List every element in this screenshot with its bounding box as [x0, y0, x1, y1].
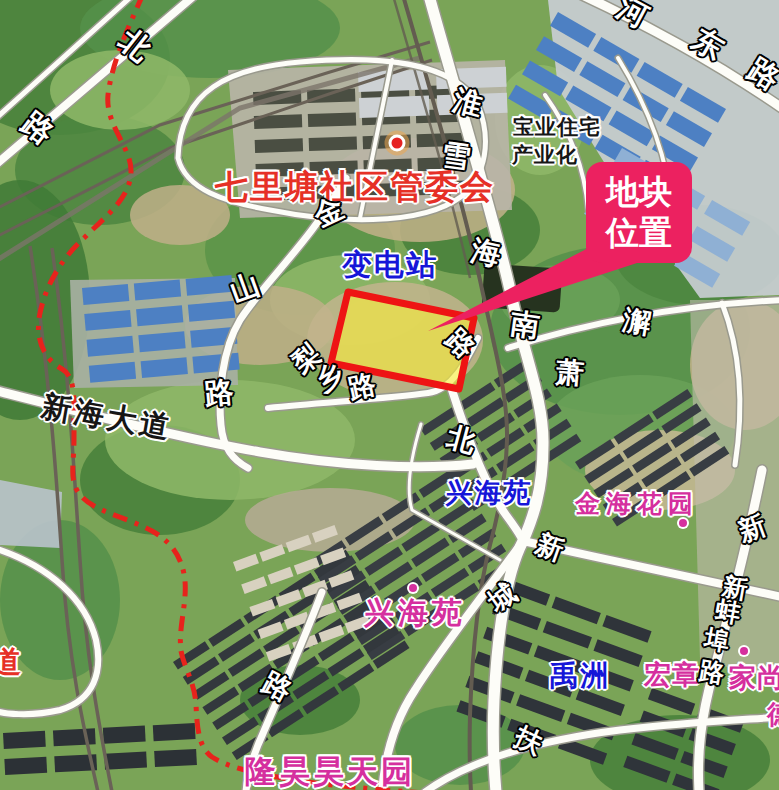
parcel-location-callout: 地块 位置	[586, 162, 692, 263]
substation-label: 变电站	[342, 250, 438, 280]
road-name-char: 路	[442, 324, 480, 362]
road-name-char: 东	[688, 24, 729, 65]
committee-marker	[392, 138, 403, 149]
road-name-char: 萧	[555, 358, 585, 388]
road-name-char: 北	[114, 24, 156, 66]
road-name-char: 城	[483, 578, 521, 616]
road-name-char: 海	[469, 236, 503, 270]
road-name-char: 新	[533, 530, 568, 565]
callout-line1: 地块	[606, 173, 672, 211]
road-name-char: 路	[203, 377, 234, 408]
road-name-char: 蚌	[714, 598, 743, 627]
road-name-char: 路	[17, 107, 59, 149]
satellite-map[interactable]: 七里塘社区管委会街道变电站兴海苑禹洲宝业住宅产业化新海大道金海花园兴海苑隆昊昊天…	[0, 0, 779, 790]
hongzhang-label: 宏章	[644, 661, 700, 688]
partial-label-right-edge: 德	[767, 701, 779, 727]
jinhai-garden-label: 金海花园	[575, 491, 699, 516]
road-name-char: 新	[735, 511, 770, 546]
jinhai-marker	[679, 519, 687, 527]
road-name-char: 路	[698, 658, 727, 687]
xinghaiyuan-marker	[409, 584, 417, 592]
road-name-char: 埠	[703, 626, 732, 655]
map-labels: 七里塘社区管委会街道变电站兴海苑禹洲宝业住宅产业化新海大道金海花园兴海苑隆昊昊天…	[0, 0, 779, 790]
road-name-char: 路	[258, 668, 296, 706]
hongzhang-marker	[740, 647, 748, 655]
jiashang-label: 家尚	[729, 664, 779, 691]
road-name-char: 南	[509, 309, 542, 342]
road-name-char: 路	[743, 53, 779, 94]
road-name-char: 扶	[511, 722, 547, 758]
road-name-char: 淮	[450, 85, 486, 121]
xinghaiyuan-north-label: 兴海苑	[446, 479, 533, 506]
qilitang-committee-label: 七里塘社区管委会	[215, 170, 495, 203]
road-name-char: 北	[444, 423, 478, 457]
longhao-haotianyuan-label: 隆昊昊天园	[245, 756, 415, 787]
road-name-char: 河	[613, 0, 654, 32]
xinghaiyuan-south-label: 兴海苑	[364, 598, 466, 628]
baoye-housing-label-line1: 宝业住宅	[513, 117, 601, 138]
callout-line2: 位置	[606, 214, 672, 252]
jiedao-label: 街道	[0, 647, 23, 677]
xinhai-avenue-label: 新海大道	[39, 391, 174, 443]
road-name-char: 路	[346, 370, 378, 402]
road-name-char: 雪	[440, 140, 473, 173]
baoye-housing-label-line2: 产业化	[512, 145, 578, 166]
road-name-char: 山	[226, 269, 263, 306]
road-name-char: 澥	[621, 306, 653, 338]
yuzhou-label: 禹洲	[550, 662, 610, 690]
